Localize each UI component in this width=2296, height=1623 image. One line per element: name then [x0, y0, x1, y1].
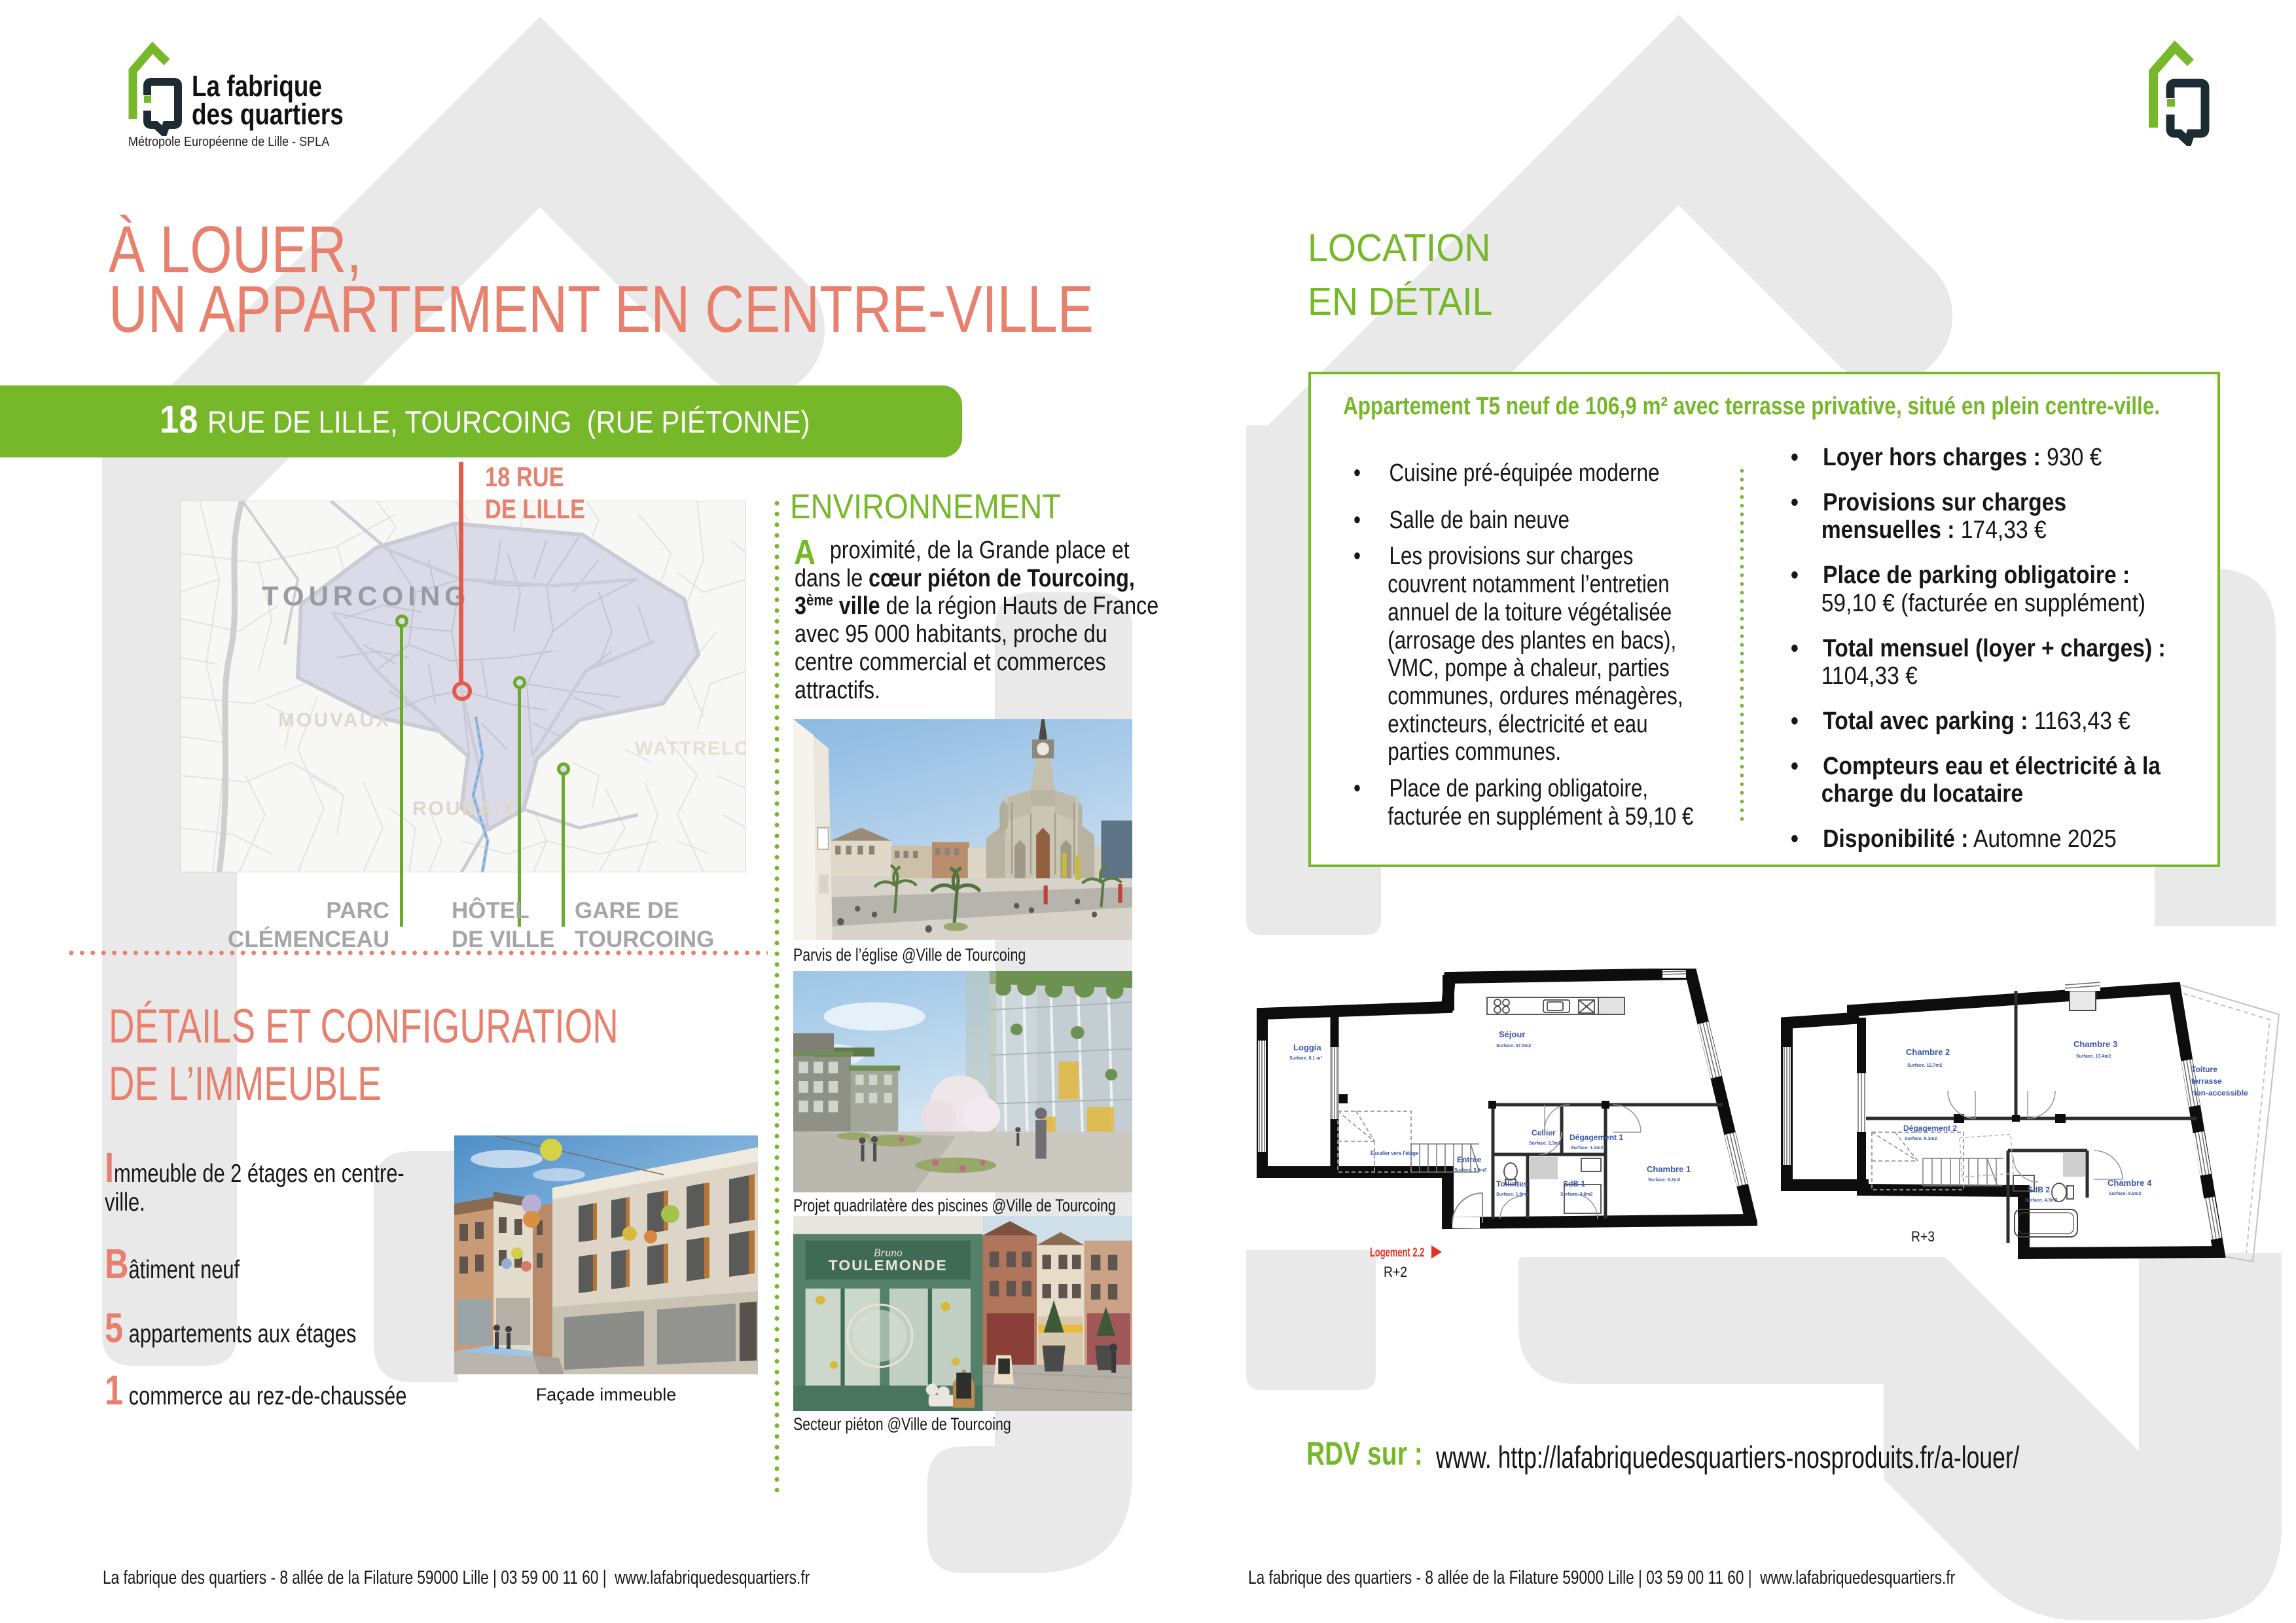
svg-text:Surface. 12.7m2: Surface. 12.7m2 — [1907, 1063, 1942, 1068]
svg-text:Toilettes: Toilettes — [1496, 1179, 1528, 1188]
svg-text:Chambre 3: Chambre 3 — [2073, 1039, 2117, 1049]
svg-text:SdB 1: SdB 1 — [1563, 1179, 1585, 1188]
svg-text:terrasse: terrasse — [2191, 1077, 2222, 1086]
svg-text:non-accessible: non-accessible — [2191, 1088, 2248, 1097]
svg-text:Surface. 1.4m2: Surface. 1.4m2 — [1571, 1146, 1604, 1150]
svg-text:Chambre 1: Chambre 1 — [1647, 1164, 1691, 1174]
svg-text:Surface. 9.2m2: Surface. 9.2m2 — [1648, 1178, 1681, 1183]
svg-text:Surface. 2.3m2: Surface. 2.3m2 — [1529, 1141, 1562, 1146]
svg-text:Surface. 3.8m2: Surface. 3.8m2 — [1560, 1192, 1593, 1197]
svg-text:TOURCOING: TOURCOING — [262, 580, 471, 611]
svg-text:Dégagement 1: Dégagement 1 — [1570, 1133, 1623, 1142]
svg-text:Dégagement 2: Dégagement 2 — [1903, 1124, 1957, 1133]
svg-text:Surface. 1.8m2: Surface. 1.8m2 — [1496, 1192, 1529, 1197]
svg-text:Surface. 8.3m2: Surface. 8.3m2 — [1905, 1137, 1937, 1141]
svg-text:Entrée: Entrée — [1457, 1155, 1482, 1164]
svg-text:Surface. 5.0m2: Surface. 5.0m2 — [1454, 1168, 1487, 1173]
svg-text:TOULEMONDE: TOULEMONDE — [829, 1258, 948, 1274]
svg-text:Surface. 37.5m2: Surface. 37.5m2 — [1496, 1044, 1531, 1048]
svg-text:Cellier: Cellier — [1532, 1128, 1556, 1137]
svg-text:Surface. 9.5m2: Surface. 9.5m2 — [2109, 1192, 2142, 1196]
svg-text:Escalier vers l'étage: Escalier vers l'étage — [1371, 1149, 1419, 1156]
svg-text:Chambre 2: Chambre 2 — [1906, 1047, 1950, 1057]
svg-text:Surface. 4.3m2: Surface. 4.3m2 — [2025, 1198, 2058, 1203]
svg-text:MOUVAUX: MOUVAUX — [278, 709, 391, 731]
svg-text:Toiture: Toiture — [2191, 1065, 2217, 1074]
svg-text:ROUBAIX: ROUBAIX — [412, 798, 516, 819]
svg-text:Surface. 13.4m2: Surface. 13.4m2 — [2076, 1054, 2111, 1059]
svg-text:Chambre 4: Chambre 4 — [2108, 1178, 2152, 1188]
svg-text:Surface. 8.1 m²: Surface. 8.1 m² — [1289, 1056, 1322, 1061]
svg-text:WATTRELOS: WATTRELOS — [635, 738, 746, 759]
svg-text:SdB 2: SdB 2 — [2028, 1185, 2050, 1194]
svg-text:Séjour: Séjour — [1499, 1029, 1525, 1039]
svg-text:Bruno: Bruno — [874, 1247, 903, 1259]
svg-text:Loggia: Loggia — [1293, 1043, 1321, 1052]
